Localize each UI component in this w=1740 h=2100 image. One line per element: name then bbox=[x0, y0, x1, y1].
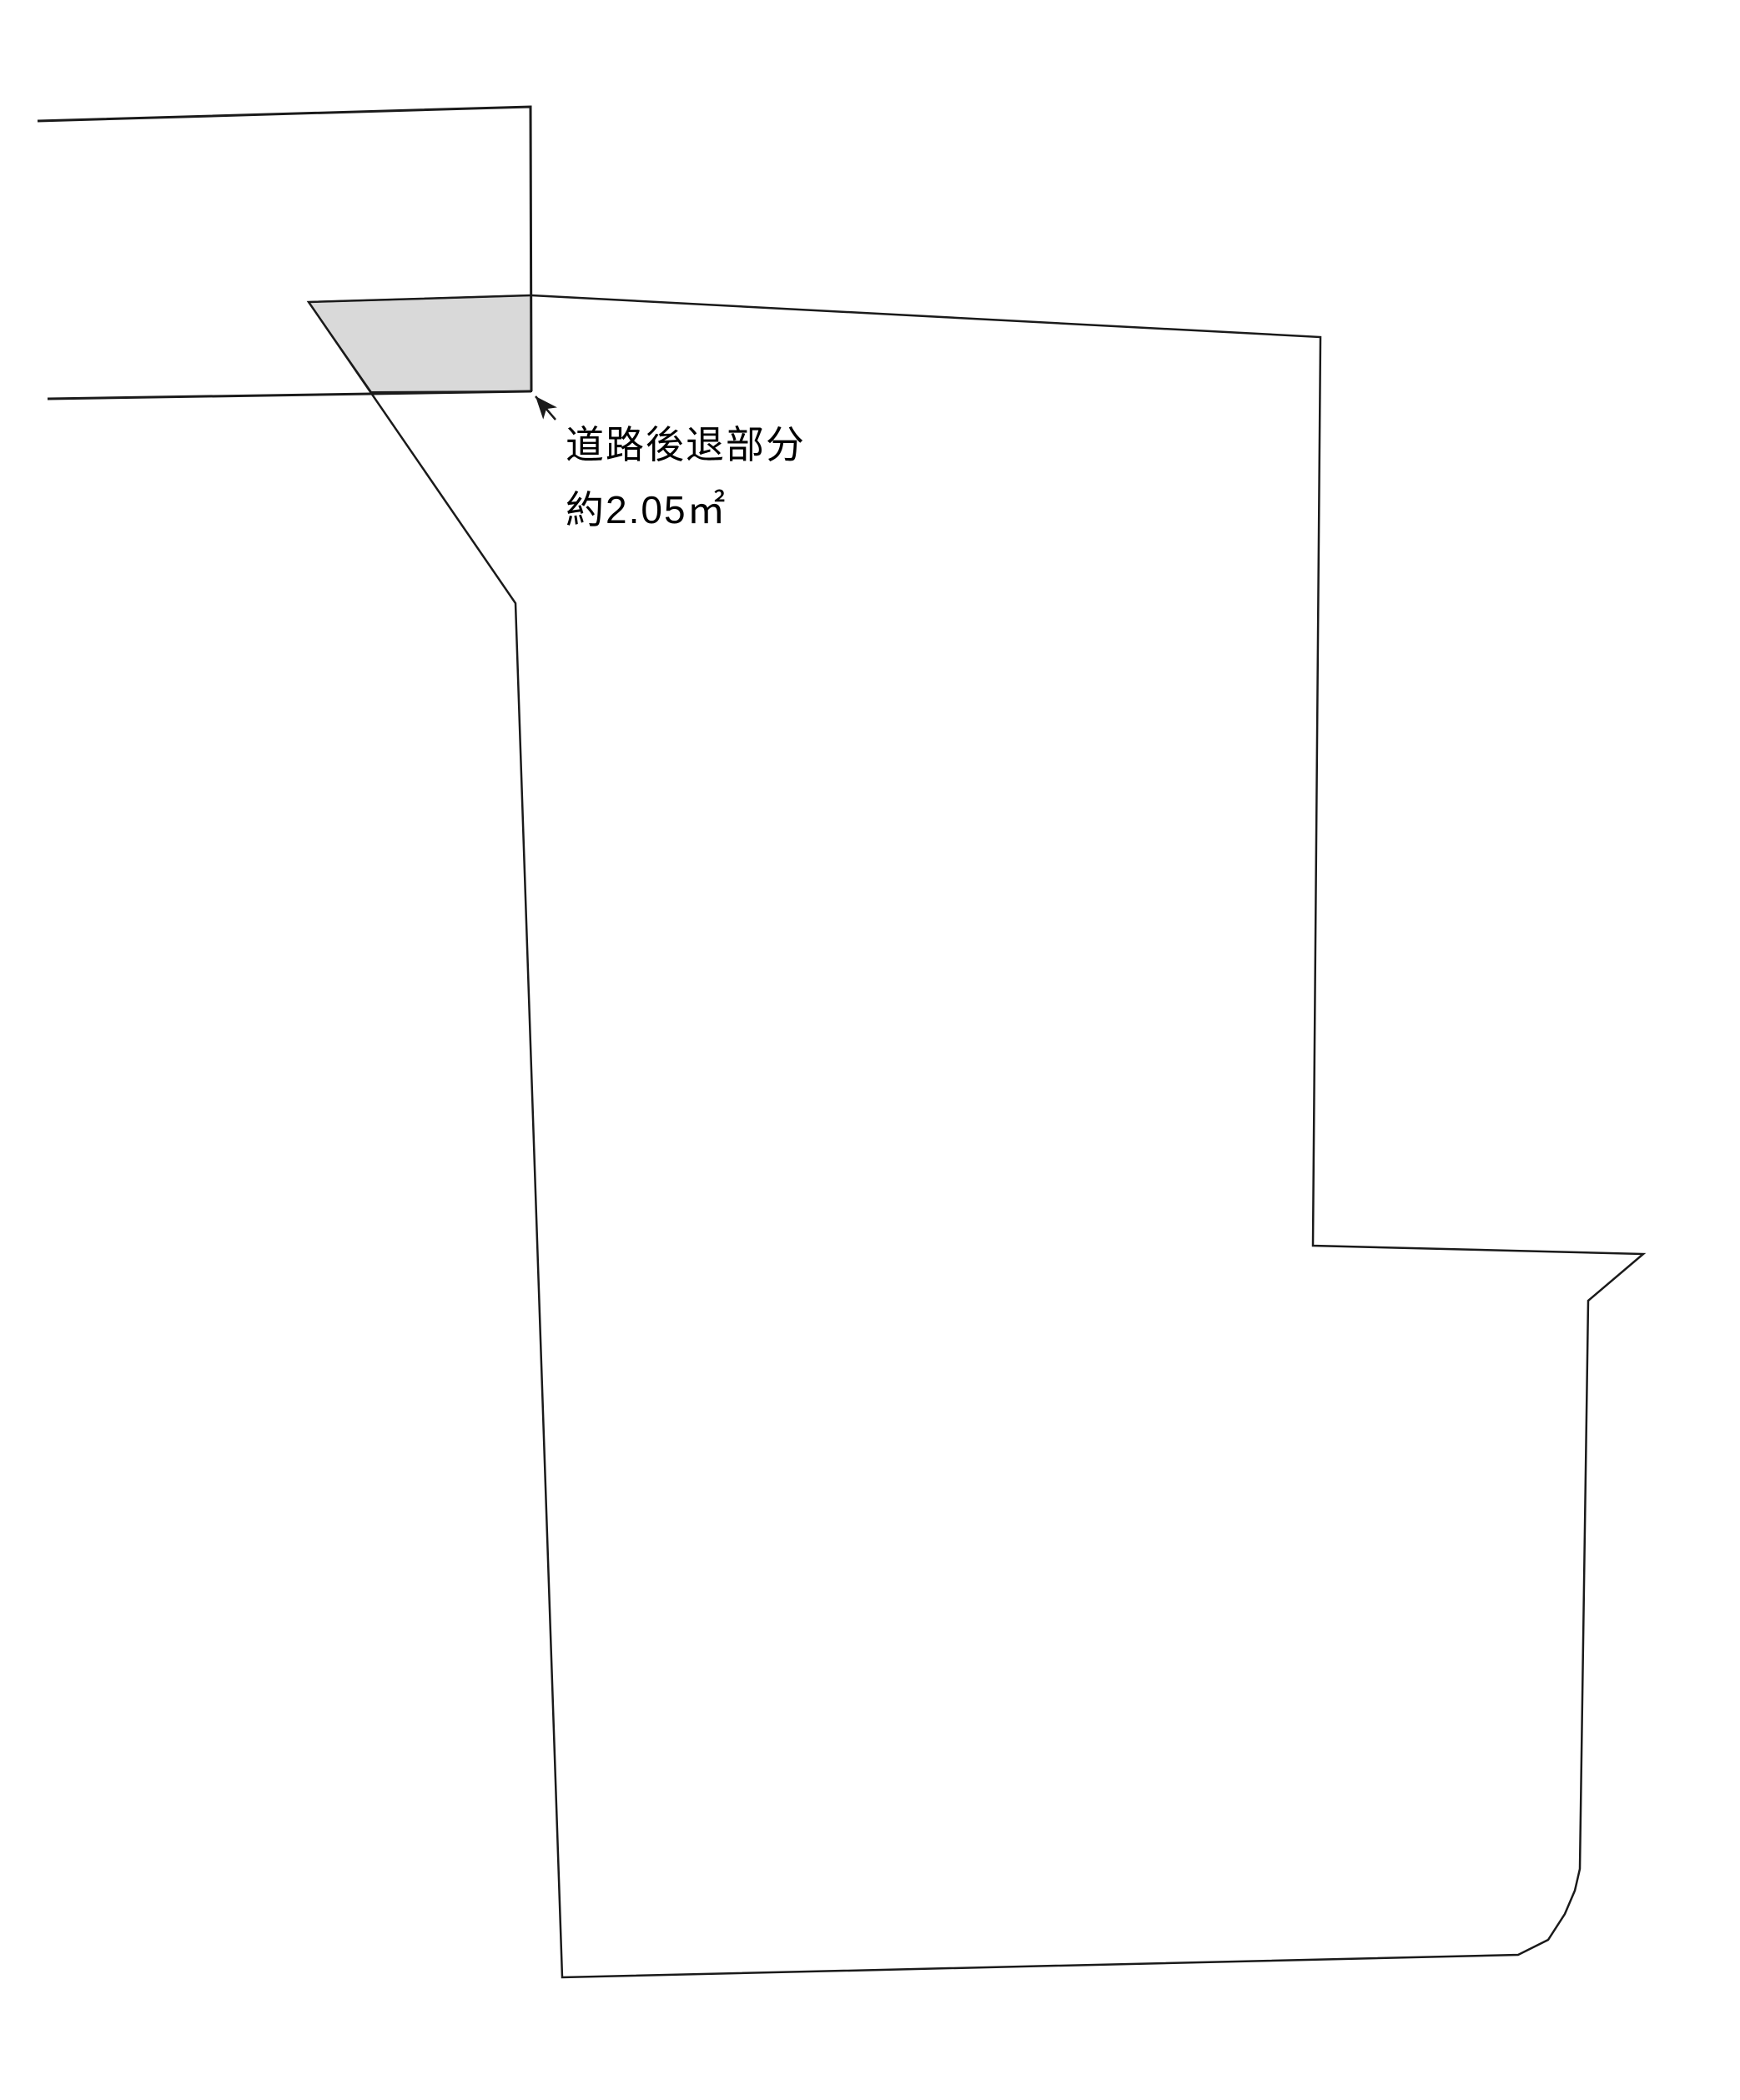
road-lower-edge-line bbox=[48, 391, 531, 399]
setback-label: 道路後退部分 bbox=[566, 423, 806, 466]
parcel-boundary-outline bbox=[309, 295, 1643, 1977]
site-plan-page: 道路後退部分 約2.05㎡ bbox=[0, 0, 1740, 2100]
setback-leader-arrow bbox=[536, 396, 556, 420]
site-plan-drawing: 道路後退部分 約2.05㎡ bbox=[0, 0, 1740, 2100]
setback-shaded-region bbox=[309, 295, 531, 392]
setback-area-label: 約2.05㎡ bbox=[566, 488, 727, 531]
